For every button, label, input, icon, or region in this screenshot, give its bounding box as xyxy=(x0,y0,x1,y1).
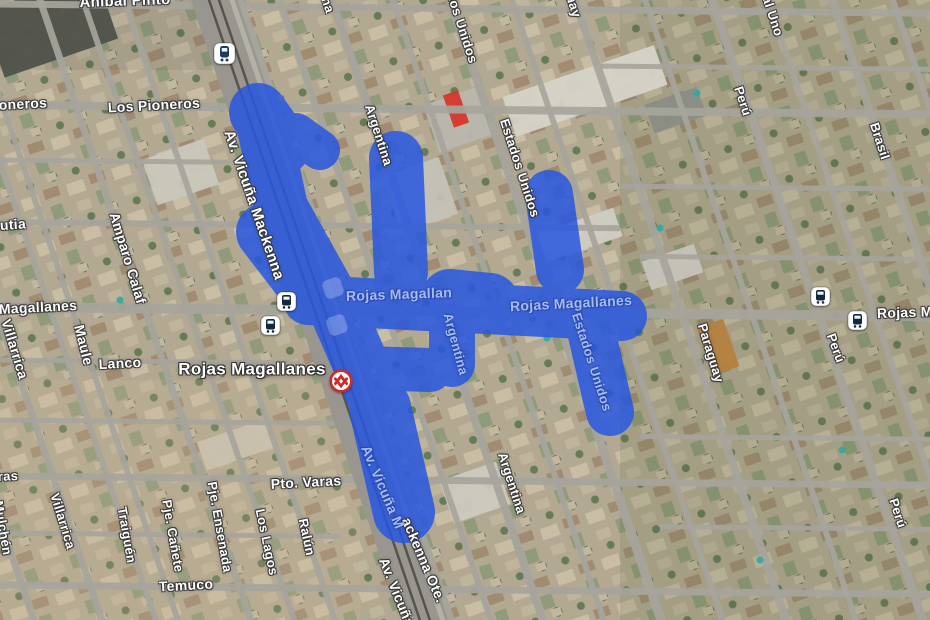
highlighted-area-overlay xyxy=(0,0,930,620)
highlighted-streets-polygon xyxy=(258,112,622,512)
map-canvas[interactable]: Aníbal PintoLos PionerosPionerosUrrutiaA… xyxy=(0,0,930,620)
